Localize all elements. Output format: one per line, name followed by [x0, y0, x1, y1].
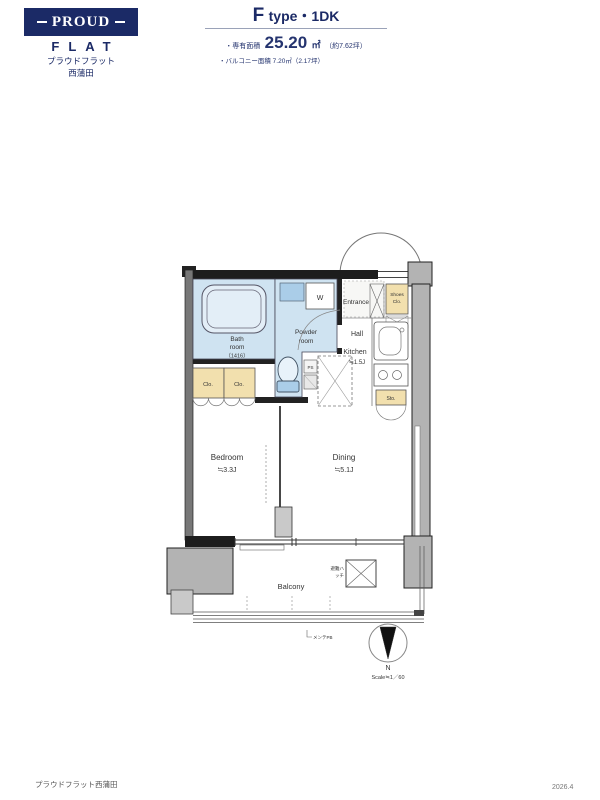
bathroom-size-label: （1416）	[225, 353, 248, 360]
footer-project-name: プラウドフラット西蒲田	[35, 779, 118, 790]
title-underline	[205, 28, 387, 29]
scale-label: Scale≒1／60	[371, 674, 404, 681]
balcony-label: Balcony	[278, 582, 305, 591]
storage-cabinet: Sto.	[376, 390, 406, 420]
area-line: ・専有面積 25.20 ㎡ （約7.62坪）	[205, 33, 387, 53]
unit-type-letter: F	[253, 5, 265, 26]
shoes-closet: Shoes Clo.	[386, 284, 408, 328]
area-tsubo: （約7.62坪）	[325, 43, 367, 50]
hatch-label-2: ッチ	[335, 573, 344, 578]
balcony-sash	[235, 538, 404, 550]
closets: Clo. Clo.	[193, 368, 255, 406]
proud-logo-text: PROUD	[52, 14, 110, 31]
flat-logo-text: FLAT	[33, 39, 138, 54]
area-label: ・専有面積	[225, 43, 260, 50]
brand-name-jp: プラウドフラット	[24, 55, 138, 67]
balcony-note-label: メンテPB	[313, 635, 333, 641]
dining-label: Dining	[333, 453, 356, 462]
stove	[374, 364, 408, 386]
dining-window-slot	[415, 426, 420, 538]
shoes-closet-label-1: Shoes	[390, 292, 404, 298]
balcony-note-leader	[307, 630, 312, 637]
footer-date: 2026.4	[552, 784, 573, 791]
brand-location-jp: 西蒲田	[24, 67, 138, 79]
kitchen-sink	[374, 322, 408, 360]
area-unit: ㎡	[312, 40, 321, 50]
entrance-label: Entrance	[343, 299, 369, 306]
balcony-area-line: ・バルコニー面積 7.20㎡（2.17坪）	[205, 55, 387, 65]
washer-box: W	[306, 283, 334, 309]
compass-icon: N Scale≒1／60	[369, 624, 407, 681]
pipe-space: PS	[304, 360, 317, 389]
powder-label-1: Powder	[295, 329, 318, 336]
sliding-door-pocket	[275, 507, 292, 537]
logo-dash-right	[115, 21, 125, 23]
closet-door-arcs	[193, 398, 255, 406]
terrace-door-leaf	[240, 545, 284, 550]
unit-type-rest: type・1DK	[269, 8, 340, 24]
washbasin	[280, 283, 304, 301]
shoes-closet-label-2: Clo.	[393, 299, 402, 305]
proud-flat-logo: PROUD FLAT プラウドフラット 西蒲田	[24, 8, 138, 79]
washer-label: W	[317, 295, 324, 302]
unit-info: F type・1DK ・専有面積 25.20 ㎡ （約7.62坪） ・バルコニー…	[205, 5, 387, 65]
bathroom: Bath room （1416）	[193, 279, 275, 360]
dining: Dining ≒5.1J	[333, 453, 356, 474]
powder-label-2: room	[299, 338, 314, 345]
closet-right-label: Clo.	[234, 382, 244, 388]
closet-left-label: Clo.	[203, 382, 213, 388]
kitchen-label: Kitchen	[343, 349, 366, 356]
compass-north-label: N	[385, 665, 390, 672]
bedroom: Bedroom ≒3.3J	[211, 453, 244, 474]
toilet	[277, 357, 299, 392]
dining-size-label: ≒5.1J	[334, 467, 353, 474]
kitchen-fixtures: Sto.	[374, 322, 408, 420]
refrigerator-space	[318, 356, 352, 406]
storage-label: Sto.	[387, 396, 396, 402]
kitchen-size-label: ≒1.5J	[349, 360, 365, 366]
hall-label: Hall	[351, 331, 364, 338]
logo-dash-left	[37, 21, 47, 23]
area-value: 25.20	[265, 33, 308, 52]
ps-label: PS	[307, 365, 313, 370]
floor-plan-page: PROUD FLAT プラウドフラット 西蒲田 F type・1DK ・専有面積…	[0, 0, 600, 800]
bathroom-label-1: Bath	[230, 336, 244, 343]
hatch-label-1: 避難ハ	[331, 565, 345, 572]
bathroom-label-2: room	[230, 344, 245, 351]
bedroom-size-label: ≒3.3J	[217, 467, 236, 474]
bathtub	[202, 285, 266, 333]
bedroom-label: Bedroom	[211, 453, 244, 462]
unit-type-title: F type・1DK	[205, 5, 387, 27]
partition	[266, 406, 292, 537]
proud-logo-box: PROUD	[24, 8, 138, 36]
floor-plan: Bath room （1416） W Powder room PS	[0, 230, 600, 690]
evacuation-hatch: 避難ハ ッチ	[331, 560, 377, 587]
